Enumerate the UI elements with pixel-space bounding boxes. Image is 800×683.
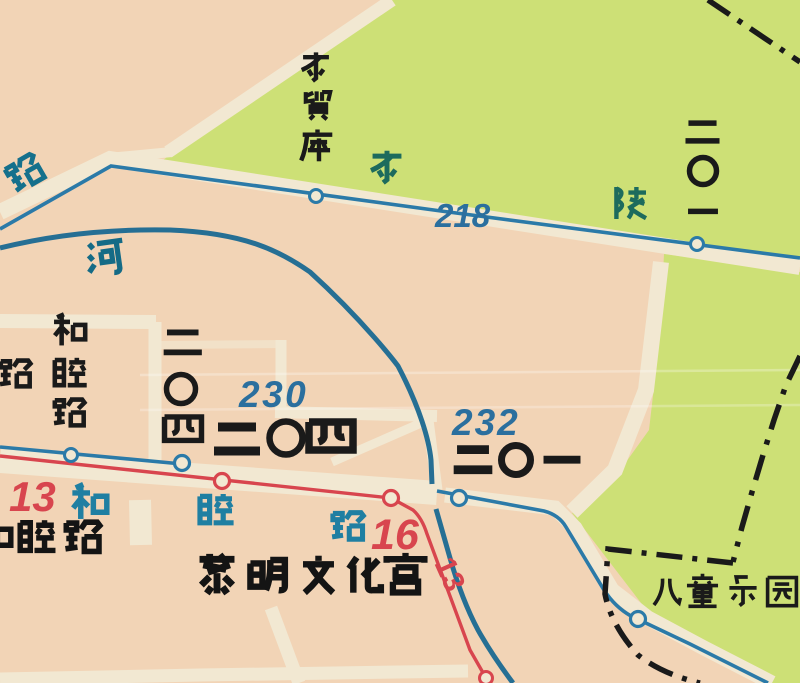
svg-text:13: 13 [9,473,56,520]
svg-text:230: 230 [238,374,308,415]
svg-text:16: 16 [371,511,420,559]
svg-text:218: 218 [434,197,491,234]
svg-text:232: 232 [451,402,520,443]
